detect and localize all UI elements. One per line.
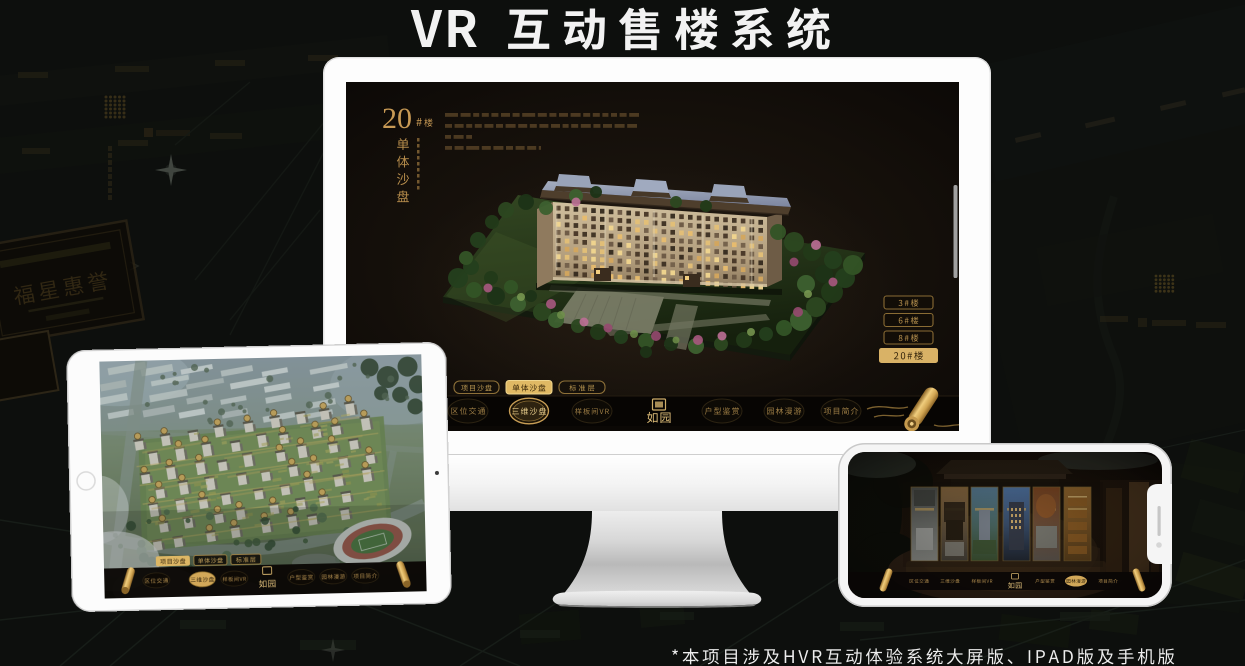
svg-text:20: 20 (382, 102, 412, 135)
